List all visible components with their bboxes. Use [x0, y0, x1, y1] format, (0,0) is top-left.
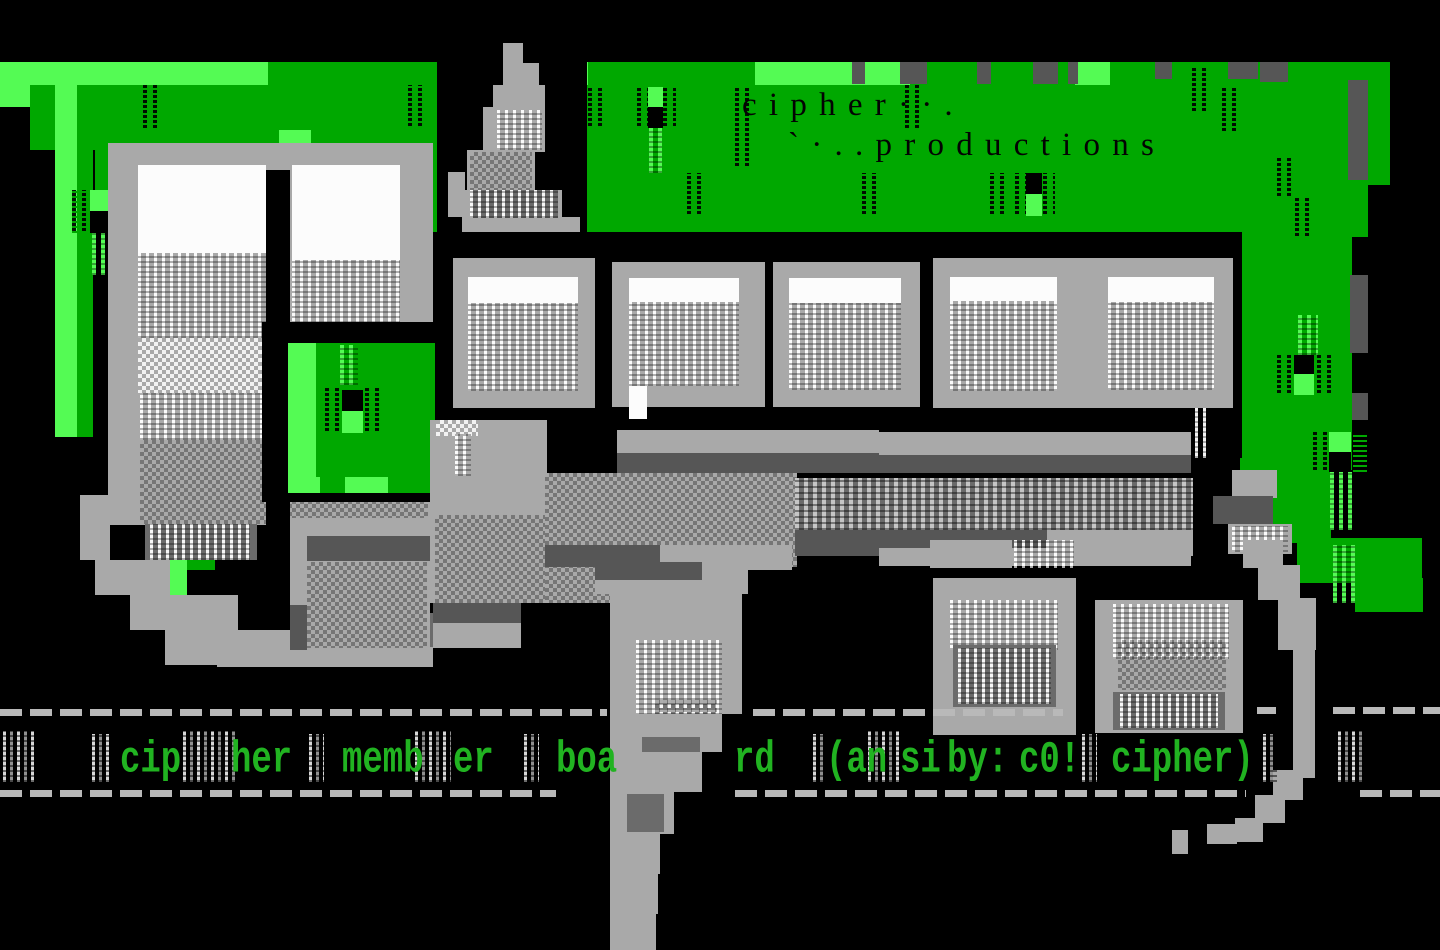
blob-step [217, 647, 433, 667]
slime-eye-pupil [90, 211, 110, 233]
window-pane [292, 165, 400, 260]
window-blinds-texture [468, 303, 578, 391]
caption-word: boa [556, 737, 617, 785]
slime-eye-texture [1353, 432, 1367, 472]
slime-eye-highlight [648, 87, 663, 107]
band-block [433, 623, 521, 648]
tower-spire [503, 63, 539, 85]
tail-block [1213, 496, 1273, 524]
caption-word: her [231, 737, 292, 785]
band-block [617, 430, 879, 453]
lower-tower-step [627, 794, 664, 832]
caption-word: cipher) [1111, 737, 1254, 785]
slime-highlight [0, 62, 268, 85]
caption-word: memb [342, 737, 424, 785]
texture-block [470, 152, 532, 190]
eye-box-highlight [352, 477, 385, 493]
dashed-line [0, 709, 607, 716]
texture-block [497, 110, 542, 150]
slime-drip [55, 85, 77, 437]
texture-block [1014, 540, 1074, 568]
art-block [900, 62, 927, 84]
window-pane [950, 277, 1057, 301]
slime-drip-texture [649, 128, 662, 173]
art-block [1068, 62, 1078, 84]
texture-block [435, 515, 545, 603]
art-block [930, 540, 1012, 568]
tower-wing [448, 172, 465, 217]
tail-block [1293, 646, 1315, 778]
texture-block [183, 731, 237, 782]
dashed-line [1360, 790, 1440, 797]
tail-block [1232, 470, 1277, 498]
eye-box [320, 477, 345, 493]
texture-block [307, 562, 427, 648]
blob-step [95, 560, 170, 595]
texture-block [813, 734, 827, 782]
slime-drip-texture [1298, 315, 1318, 355]
slime-eye-highlight [90, 190, 110, 211]
texture-block [1277, 158, 1292, 198]
caption-word: er [453, 737, 494, 785]
lower-tower-step [614, 914, 656, 950]
art-block [977, 62, 991, 84]
window-blinds-texture [950, 301, 1057, 391]
window-blinds-texture [950, 600, 1058, 650]
window-blinds-texture [958, 648, 1051, 704]
art-block [1228, 62, 1258, 79]
window-blinds-texture [138, 253, 266, 338]
slime-eye-texture [1043, 173, 1055, 216]
texture-block [1295, 198, 1311, 238]
window-blinds-texture [138, 338, 266, 393]
art-block [1352, 393, 1368, 420]
texture-block [990, 173, 1006, 216]
art-block [852, 62, 865, 84]
lower-tower-step [610, 834, 660, 874]
window-blinds-texture [1108, 302, 1214, 390]
tail-block [1172, 830, 1188, 854]
texture-block [862, 173, 876, 216]
slime-band [577, 185, 1240, 232]
tail-block [1207, 824, 1237, 844]
texture-block [1195, 408, 1211, 458]
slime-eye-pupil [648, 107, 663, 128]
texture-block [1192, 66, 1208, 113]
slime-eye-texture [1317, 355, 1332, 395]
dashed-line [753, 709, 1063, 716]
art-block [1155, 62, 1172, 79]
texture-block [687, 173, 701, 216]
slime-column [1240, 62, 1350, 182]
slime-drip-texture [1333, 545, 1355, 603]
slime-drip-texture [340, 345, 358, 385]
slime-eye-highlight [342, 411, 363, 433]
slime-band [30, 85, 460, 150]
lower-tower-step [612, 874, 658, 914]
texture-block [92, 734, 112, 782]
blob-step [130, 595, 238, 630]
window-pane [789, 278, 901, 303]
eye-box-highlight [288, 343, 316, 493]
slime-eye-texture [1277, 355, 1292, 395]
slime-eye-texture [663, 87, 676, 128]
slime-eye-texture [325, 387, 339, 433]
band-block [290, 605, 307, 650]
window-pane [468, 277, 578, 303]
slime-eye-pupil [1294, 355, 1314, 374]
texture-block [524, 734, 539, 782]
tail-block [1258, 565, 1300, 600]
caption-word: rd [734, 737, 775, 785]
tail-block [1235, 818, 1263, 842]
slime-eye-highlight [1329, 432, 1351, 452]
slime-eye-texture [72, 190, 89, 233]
texture-block [470, 190, 558, 218]
window-blinds-texture [789, 303, 901, 390]
slime-eye-highlight [1294, 374, 1314, 395]
slime-highlight [1075, 62, 1110, 85]
slime-drip [77, 85, 93, 437]
window-pane [138, 165, 266, 253]
slime-eye-pupil [1026, 173, 1042, 194]
slime-eye-pupil [1329, 452, 1351, 472]
window-pane [629, 278, 739, 302]
caption-word: si [900, 737, 941, 785]
texture-block [408, 85, 424, 128]
slime-drip-texture [1330, 472, 1352, 530]
texture-block [150, 524, 250, 560]
tail-block [1243, 540, 1283, 568]
window-pane [629, 386, 647, 419]
tower-cap [702, 556, 748, 594]
art-block [1260, 62, 1288, 82]
dashed-line [0, 790, 556, 797]
slime-highlight [755, 62, 910, 85]
band-block [433, 603, 521, 623]
title-line-1: c i p h e r · · . [742, 88, 955, 122]
texture-block [588, 88, 602, 128]
band-block [617, 453, 1191, 473]
caption-word: (an [826, 737, 887, 785]
tail-block [1278, 598, 1316, 650]
texture-block [143, 85, 160, 130]
texture-block [795, 478, 1193, 530]
window-blinds-texture [1120, 694, 1218, 728]
slime-patch [1297, 538, 1422, 583]
art-block [1350, 275, 1368, 353]
caption-word: cip [120, 737, 181, 785]
texture-block [1222, 88, 1238, 133]
band-block [879, 432, 1191, 455]
dashed-line [1333, 707, 1440, 714]
texture-block [1082, 734, 1097, 782]
dashed-line [735, 790, 1246, 797]
slime-drip-texture [92, 233, 108, 275]
slime-eye-highlight [1026, 194, 1042, 216]
lower-tower-step [610, 752, 702, 792]
tower-spire [493, 85, 545, 107]
slime-eye-pupil [342, 390, 363, 411]
slime-eye-texture [1313, 432, 1327, 472]
texture-block [1263, 734, 1277, 782]
art-block [1033, 62, 1058, 84]
texture-block [455, 434, 471, 476]
texture-block [309, 734, 324, 782]
window-blinds-texture [629, 302, 739, 386]
tower-spire [503, 43, 523, 65]
dashed-line [1257, 707, 1276, 714]
window-blinds-texture [140, 393, 266, 440]
art-block [1348, 80, 1368, 180]
texture-block [3, 731, 36, 782]
texture-block [1338, 731, 1365, 782]
caption-word: by: [947, 737, 1008, 785]
window-pane [1108, 277, 1214, 302]
art-block [595, 562, 707, 580]
title-line-2: ` · . . p r o d u c t i o n s [788, 128, 1156, 162]
band-block [307, 536, 430, 561]
ansi-art-canvas: c i p h e r · · . ` · . . p r o d u c t … [0, 0, 1440, 950]
caption-word: c0! [1019, 737, 1080, 785]
blob-step [80, 495, 110, 560]
slime-patch [1355, 578, 1423, 612]
window-blinds-texture [1118, 640, 1226, 690]
slime-eye-texture [365, 387, 379, 433]
